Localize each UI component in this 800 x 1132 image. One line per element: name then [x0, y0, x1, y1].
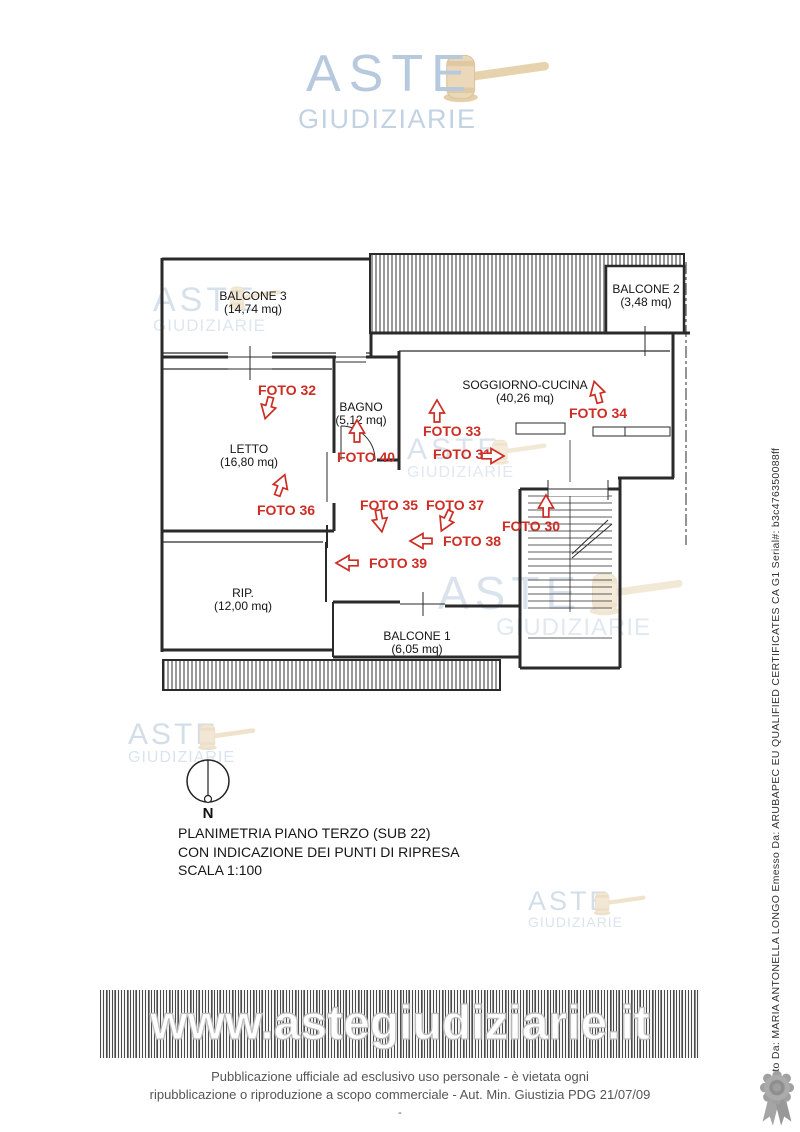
plan-caption: PLANIMETRIA PIANO TERZO (SUB 22) CON IND…: [178, 824, 460, 880]
logo-text-aste: ASTE: [306, 48, 477, 100]
foto-label-34: FOTO 34: [550, 406, 646, 421]
gavel-icon: [436, 52, 554, 104]
room-label-balcone2: BALCONE 2(3,48 mq): [576, 283, 716, 309]
main-logo: ASTE GIUDIZIARIE: [298, 48, 477, 133]
foto-label-39: FOTO 39: [350, 556, 446, 571]
caption-line3: SCALA 1:100: [178, 861, 460, 880]
room-label-balcone1: BALCONE 1(6,05 mq): [347, 630, 487, 656]
foto-arrow-40: [347, 418, 367, 444]
foto-arrow-35: [368, 506, 392, 535]
watermark: ASTE GIUDIZIARIE: [528, 888, 623, 929]
foto-label-32: FOTO 32: [239, 383, 335, 398]
room-label-balcone3: BALCONE 3(14,74 mq): [183, 290, 323, 316]
foto-arrow-33: [427, 398, 447, 424]
gavel-icon: [194, 722, 258, 752]
site-url: www.astegiudiziarie.it: [150, 997, 650, 1050]
compass-north-label: N: [196, 805, 220, 822]
barcode-watermark-band: www.astegiudiziarie.it: [100, 990, 700, 1058]
disclaimer-line2: ripubblicazione o riproduzione a scopo c…: [60, 1086, 740, 1104]
foto-label-38: FOTO 38: [424, 534, 520, 549]
bottom-hatch-strip: [163, 660, 500, 690]
kitchen-counters: [516, 423, 670, 436]
disclaimer: Pubblicazione ufficiale ad esclusivo uso…: [60, 1068, 740, 1122]
gavel-icon: [590, 890, 648, 917]
logo-text-giudiziarie: GIUDIZIARIE: [298, 106, 477, 133]
foto-arrow-38: [408, 531, 434, 551]
room-label-letto: LETTO(16,80 mq): [179, 443, 319, 469]
foto-label-36: FOTO 36: [238, 503, 334, 518]
foto-arrow-39: [334, 553, 360, 573]
foto-label-40: FOTO 40: [318, 450, 414, 465]
disclaimer-dash: -: [60, 1104, 740, 1122]
room-label-soggiorno: SOGGIORNO-CUCINA(40,26 mq): [455, 379, 595, 405]
stairwell: [520, 440, 620, 668]
foto-arrow-31: [480, 446, 506, 466]
caption-line2: CON INDICAZIONE DEI PUNTI DI RIPRESA: [178, 843, 460, 862]
document-page: ASTE GIUDIZIARIE ASTE GIUDIZIARIE ASTE G…: [0, 0, 800, 1132]
foto-label-30: FOTO 30: [483, 519, 579, 534]
foto-arrow-30: [536, 493, 556, 519]
compass-icon: [180, 752, 236, 808]
room-label-rip: RIP.(12,00 mq): [173, 587, 313, 613]
disclaimer-line1: Pubblicazione ufficiale ad esclusivo uso…: [60, 1068, 740, 1086]
seal-rosette-icon: [754, 1068, 800, 1132]
caption-line1: PLANIMETRIA PIANO TERZO (SUB 22): [178, 824, 460, 843]
digital-signature-text: Firmato Da: MARIA ANTONELLA LONGO Emesso…: [770, 385, 790, 1100]
foto-label-33: FOTO 33: [404, 424, 500, 439]
